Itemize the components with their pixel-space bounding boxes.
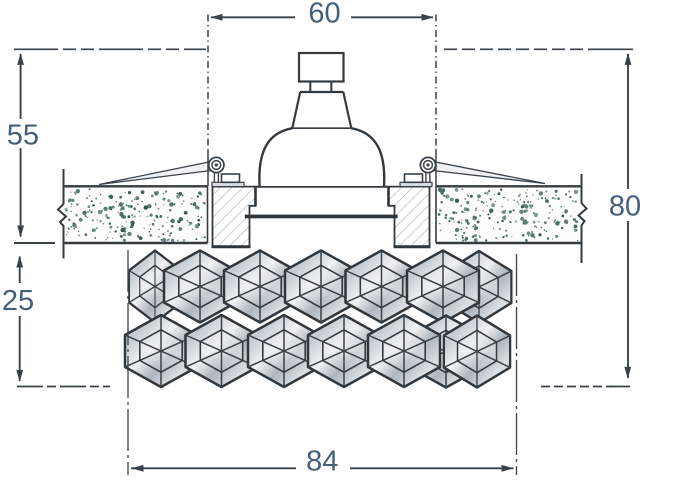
svg-text:60: 60 bbox=[308, 0, 340, 30]
svg-text:55: 55 bbox=[7, 120, 39, 152]
svg-text:84: 84 bbox=[306, 446, 338, 476]
svg-text:25: 25 bbox=[2, 285, 34, 317]
svg-text:80: 80 bbox=[609, 190, 641, 222]
